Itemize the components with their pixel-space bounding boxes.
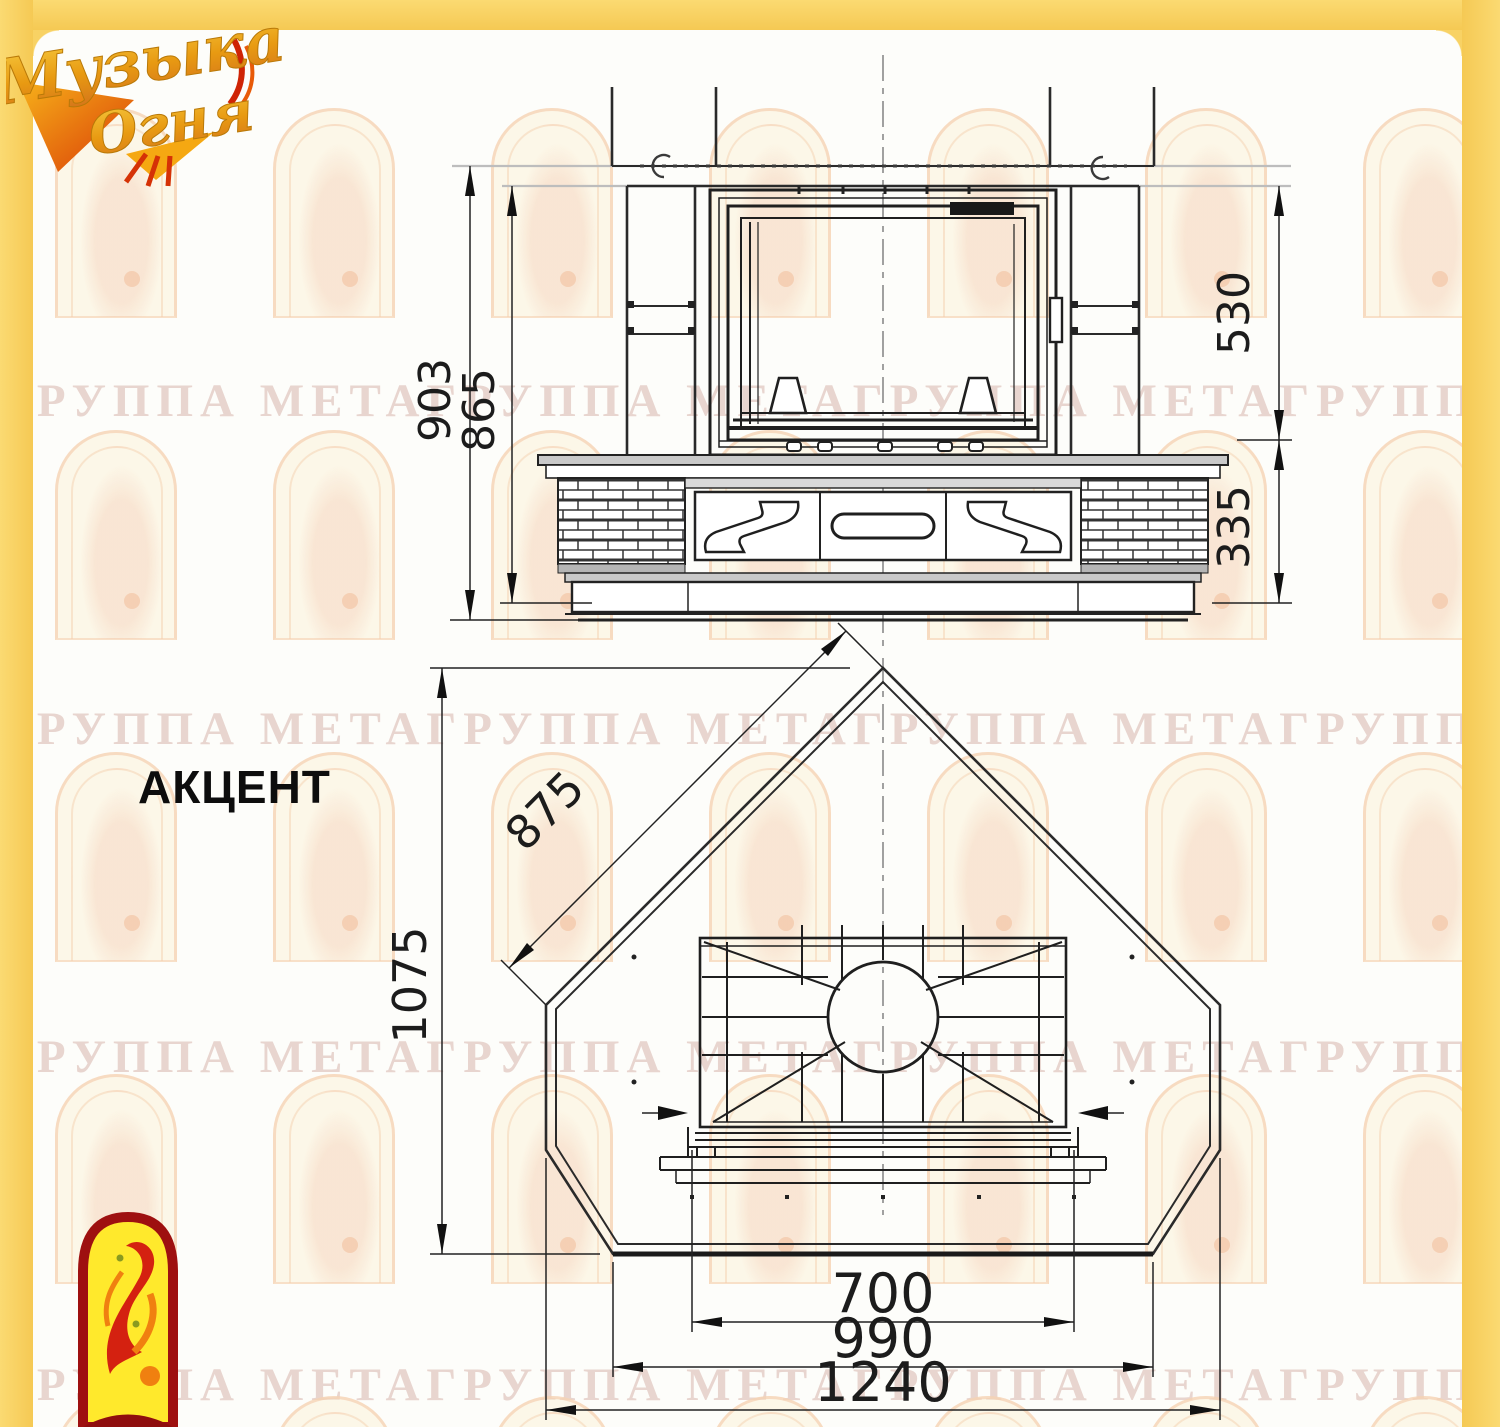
right-pillar (1071, 186, 1139, 455)
brick-column-right (1081, 478, 1208, 564)
door-handle (1050, 298, 1062, 342)
dim-depth: 1075 (383, 926, 437, 1043)
dim-mantel-height: 865 (454, 368, 505, 452)
insert-brand-label (950, 202, 1014, 215)
flame-emblem (78, 1206, 178, 1427)
technical-drawing: 903 865 530 335 (0, 0, 1500, 1427)
hearth-shelf (538, 455, 1228, 478)
plan-dim-lines (430, 623, 1220, 1420)
plinth (565, 573, 1201, 620)
brand-logo: Музыка Огня (6, 4, 306, 194)
model-title: АКЦЕНТ (138, 760, 331, 814)
firebox-door (710, 190, 1062, 455)
frame-right (1462, 0, 1500, 1427)
frame-left (0, 0, 33, 1427)
base-section (558, 478, 1208, 573)
frame-corner (1436, 30, 1462, 56)
dim-base-height: 335 (1209, 485, 1260, 569)
brick-column-left (558, 478, 685, 564)
dim-side-edge: 875 (495, 761, 595, 861)
left-pillar (627, 186, 695, 455)
panel-slot (832, 514, 934, 538)
dim-firebox-zone-height: 530 (1209, 271, 1260, 355)
dim-overall-width: 1240 (814, 1351, 951, 1414)
